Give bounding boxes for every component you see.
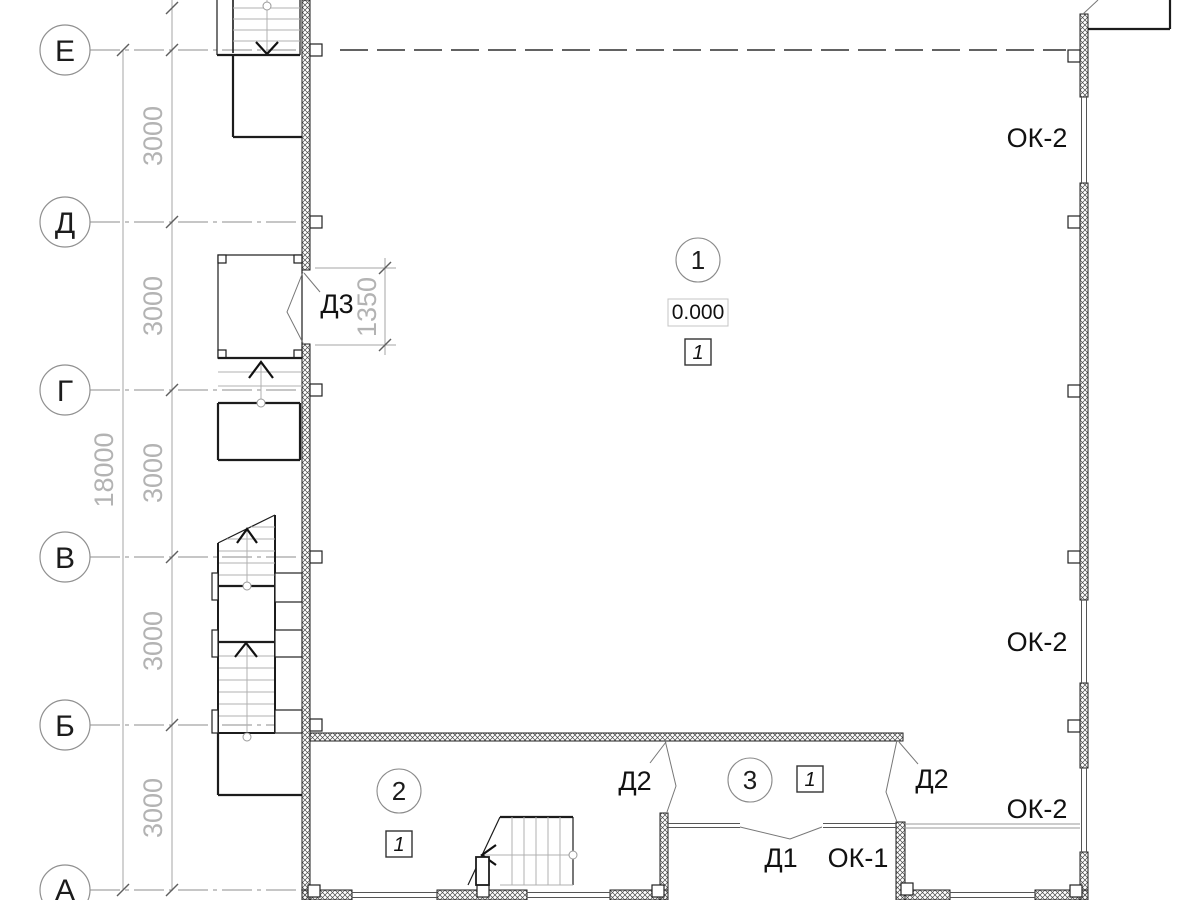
windows bbox=[352, 97, 1087, 898]
plan-linework: Е Д Г В Б А 3000 3000 3000 3000 3000 180… bbox=[0, 0, 1200, 900]
label-d3: Д3 bbox=[320, 289, 353, 319]
partition-left bbox=[668, 824, 740, 828]
room-1-number: 1 bbox=[691, 245, 705, 275]
label-ok2-bot: ОК-2 bbox=[1007, 794, 1068, 824]
window-bottom-3 bbox=[950, 893, 1035, 898]
pilasters bbox=[308, 44, 1082, 897]
dim-3000-3: 3000 bbox=[138, 443, 168, 503]
stair-top bbox=[217, 0, 302, 137]
window-bottom-2 bbox=[527, 893, 610, 898]
opening-d2-right bbox=[886, 740, 897, 822]
room-2-number: 2 bbox=[392, 776, 406, 806]
floor-mark-room3: 1 bbox=[804, 769, 815, 791]
stair-up-arrow bbox=[235, 643, 257, 657]
axis-label-v: В bbox=[55, 542, 75, 575]
label-ok1: ОК-1 bbox=[828, 843, 889, 873]
leader-d2-left bbox=[650, 742, 666, 763]
floor-mark-room2: 1 bbox=[393, 834, 404, 856]
label-ok2-top: ОК-2 bbox=[1007, 123, 1068, 153]
floor-mark-room1: 1 bbox=[692, 342, 703, 364]
axis-label-d: Д bbox=[55, 207, 75, 240]
label-ok2-mid: ОК-2 bbox=[1007, 627, 1068, 657]
leader-d2-right bbox=[899, 742, 918, 764]
entrance-structure-top-right bbox=[1083, 0, 1170, 29]
elevation-value: 0.000 bbox=[672, 301, 725, 324]
opening-d2-left bbox=[665, 740, 676, 812]
dim-18000: 18000 bbox=[89, 432, 119, 507]
axis-label-g: Г bbox=[57, 375, 73, 408]
axis-label-b: Б bbox=[55, 710, 75, 743]
door-opening-symbols bbox=[287, 272, 918, 839]
elevation-mark: 0.000 bbox=[668, 299, 728, 326]
stair-bottom bbox=[468, 817, 577, 885]
window-ok2-bot bbox=[1082, 768, 1087, 852]
floor-plan-canvas: Е Д Г В Б А 3000 3000 3000 3000 3000 180… bbox=[0, 0, 1200, 900]
walls bbox=[302, 0, 1088, 900]
label-d1: Д1 bbox=[764, 843, 797, 873]
grid-bubbles bbox=[40, 25, 90, 900]
stair-middle bbox=[218, 358, 302, 460]
dim-3000-2: 3000 bbox=[138, 276, 168, 336]
opening-d1 bbox=[740, 827, 822, 839]
partition-right bbox=[905, 824, 1080, 828]
opening-d3 bbox=[287, 272, 303, 343]
window-bottom-1 bbox=[352, 893, 437, 898]
window-ok2-mid bbox=[1082, 600, 1087, 683]
grid-axis-lines bbox=[90, 50, 302, 890]
label-d2-left: Д2 bbox=[618, 766, 651, 796]
axis-label-e: Е bbox=[55, 35, 75, 68]
dim-3000-4: 3000 bbox=[138, 611, 168, 671]
window-ok1 bbox=[823, 824, 896, 828]
dim-3000-5: 3000 bbox=[138, 778, 168, 838]
dim-3000-1: 3000 bbox=[138, 106, 168, 166]
axis-label-a: А bbox=[55, 874, 75, 900]
label-d2-right: Д2 bbox=[915, 764, 948, 794]
leader-d3 bbox=[304, 273, 320, 292]
opening-labels: Д3 Д2 Д2 Д1 ОК-1 ОК-2 ОК-2 ОК-2 bbox=[320, 123, 1067, 873]
dim-1350: 1350 bbox=[352, 277, 382, 337]
grid-axis-letters: Е Д Г В Б А bbox=[55, 35, 75, 900]
window-ok2-top bbox=[1082, 97, 1087, 183]
room-3-number: 3 bbox=[743, 765, 757, 795]
dimension-texts: 3000 3000 3000 3000 3000 18000 1350 bbox=[89, 106, 382, 838]
